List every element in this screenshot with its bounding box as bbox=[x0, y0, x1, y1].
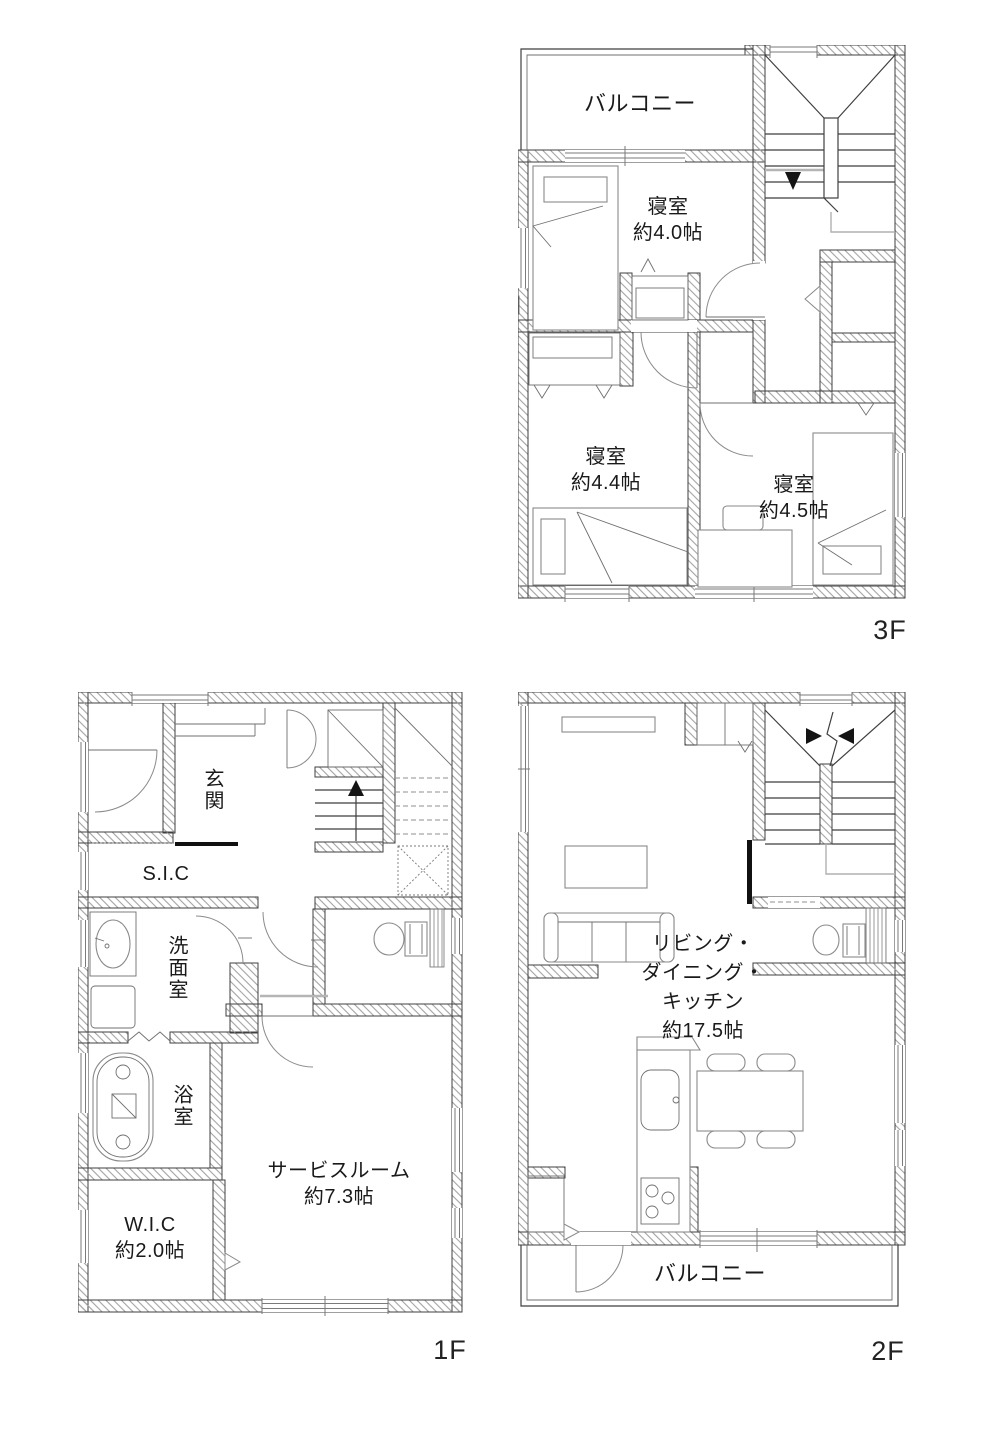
bathtub bbox=[93, 1053, 153, 1161]
hall-closet-2f bbox=[697, 703, 753, 752]
toilet-1f bbox=[374, 922, 427, 956]
room-name: キッチン bbox=[642, 988, 765, 1017]
stair-arrow-left-icon bbox=[838, 728, 854, 744]
toilet-tank bbox=[843, 924, 865, 957]
doors-3f bbox=[641, 263, 765, 456]
room-size: 約7.3帖 bbox=[268, 1184, 411, 1210]
living-furniture-2f bbox=[544, 717, 674, 962]
label-entrance-1f: 玄関 bbox=[202, 768, 222, 812]
room-size: 約2.0帖 bbox=[115, 1238, 185, 1264]
label-floor-1f: 1F bbox=[433, 1337, 467, 1363]
label-bedroom-b-3f: 寝室 約4.4帖 bbox=[571, 444, 641, 496]
label-bathroom-1f: 浴室 bbox=[171, 1084, 191, 1128]
stair-up-arrow-icon bbox=[348, 780, 364, 796]
room-size: 約4.4帖 bbox=[571, 470, 641, 496]
room-name: サービスルーム bbox=[268, 1158, 411, 1184]
label-service-room-1f: サービスルーム 約7.3帖 bbox=[268, 1158, 411, 1210]
toilet-2f bbox=[813, 924, 865, 957]
floor-plan-page: バルコニー 寝室 約4.0帖 寝室 約4.4帖 寝室 約4.5帖 3F 玄関 S… bbox=[0, 0, 1000, 1433]
kitchen-2f bbox=[637, 1037, 700, 1232]
toilet-bowl bbox=[813, 925, 839, 955]
plumbing-strip bbox=[866, 908, 886, 963]
plumbing-strip bbox=[430, 909, 444, 967]
wic-door-pointer bbox=[225, 1253, 240, 1270]
low-table bbox=[565, 846, 647, 888]
bathroom-fixtures-1f bbox=[93, 1032, 170, 1161]
pantry-2f bbox=[528, 1176, 579, 1240]
room-size: 約4.0帖 bbox=[633, 220, 703, 246]
kitchen-counter bbox=[637, 1050, 690, 1232]
stair-arrow-right-icon bbox=[806, 728, 822, 744]
kitchen-panel bbox=[747, 840, 752, 904]
closet-door-pointer bbox=[805, 286, 820, 312]
label-ldk-2f: リビング・ ダイニング・ キッチン 約17.5帖 bbox=[642, 930, 765, 1046]
staircase-3f bbox=[765, 55, 895, 232]
toilet-tank bbox=[405, 922, 427, 956]
toilet-bowl bbox=[374, 923, 404, 955]
label-sic-1f: S.I.C bbox=[143, 861, 190, 887]
chair bbox=[757, 1054, 795, 1071]
label-balcony-2f: バルコニー bbox=[654, 1261, 766, 1287]
furniture-3f bbox=[533, 166, 893, 587]
room-name: ダイニング・ bbox=[642, 959, 765, 988]
chair bbox=[707, 1054, 745, 1071]
label-balcony-3f: バルコニー bbox=[584, 91, 696, 117]
bed-4-0 bbox=[533, 166, 618, 330]
floor-plan-3f bbox=[518, 45, 908, 645]
label-washroom-1f: 洗面室 bbox=[166, 935, 186, 1001]
chair bbox=[707, 1131, 745, 1148]
room-name: 寝室 bbox=[571, 444, 641, 470]
chair bbox=[757, 1131, 795, 1148]
washroom-fixtures-1f bbox=[90, 912, 136, 1028]
room-name: 寝室 bbox=[759, 472, 829, 498]
room-size: 約4.5帖 bbox=[759, 498, 829, 524]
label-bedroom-a-3f: 寝室 約4.0帖 bbox=[633, 194, 703, 246]
label-wic-1f: W.I.C 約2.0帖 bbox=[115, 1212, 185, 1264]
room-name: 寝室 bbox=[633, 194, 703, 220]
label-floor-2f: 2F bbox=[871, 1338, 905, 1364]
label-bedroom-c-3f: 寝室 約4.5帖 bbox=[759, 472, 829, 524]
washing-machine bbox=[91, 986, 135, 1028]
tv-board bbox=[562, 717, 655, 732]
sink bbox=[96, 920, 130, 968]
dining-table bbox=[697, 1071, 803, 1131]
room-name: リビング・ bbox=[642, 930, 765, 959]
room-name: W.I.C bbox=[115, 1212, 185, 1238]
stair-down-arrow-icon bbox=[785, 172, 801, 190]
bed-4-4 bbox=[533, 508, 688, 585]
dining-2f bbox=[697, 1054, 803, 1148]
room-size: 約17.5帖 bbox=[642, 1017, 765, 1046]
label-floor-3f: 3F bbox=[873, 617, 907, 643]
